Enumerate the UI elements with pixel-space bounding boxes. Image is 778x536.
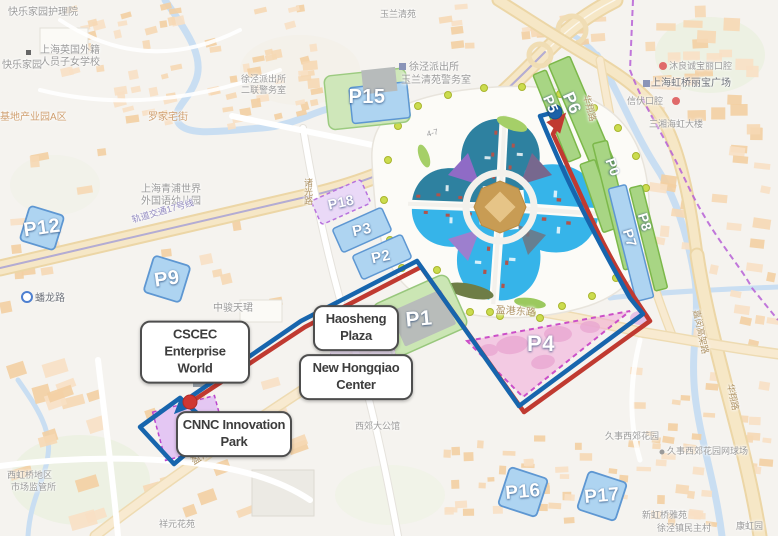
- route-end-marker: [183, 395, 197, 409]
- map-building: [668, 423, 678, 431]
- map-building: [652, 443, 661, 449]
- map-building: [695, 6, 706, 18]
- map-building: [575, 443, 582, 450]
- map-building: [307, 78, 320, 89]
- map-building: [750, 238, 765, 249]
- map-building: [645, 42, 655, 52]
- map-building: [755, 315, 765, 325]
- map-building: [711, 107, 725, 119]
- parking-area-p15: [323, 66, 410, 130]
- map-building: [580, 453, 592, 461]
- map-building: [633, 402, 646, 409]
- map-building: [726, 222, 741, 231]
- dental-clinic-icon: [672, 97, 680, 105]
- map-building: [451, 480, 459, 489]
- map-building: [161, 248, 172, 257]
- map-building: [560, 474, 569, 479]
- mall-icon: [643, 80, 650, 87]
- map-building: [657, 495, 665, 504]
- map-building: [707, 53, 722, 62]
- map-building: [735, 59, 753, 71]
- map-building: [608, 468, 617, 474]
- map-building: [766, 272, 776, 282]
- gate-dot: [633, 153, 640, 160]
- map-graphics: [0, 0, 778, 536]
- map-building: [692, 433, 702, 440]
- map-building: [96, 65, 105, 73]
- map-building: [142, 40, 150, 50]
- map-building: [477, 440, 484, 448]
- gate-dot: [445, 92, 452, 99]
- map-building: [443, 450, 451, 458]
- map-building: [163, 115, 173, 125]
- gate-dot: [589, 293, 596, 300]
- map-building: [463, 452, 473, 461]
- map-building: [650, 81, 670, 90]
- map-building: [564, 517, 575, 524]
- metro-station-icon: [22, 292, 32, 302]
- map-building: [534, 435, 545, 441]
- map-building: [703, 413, 715, 418]
- map-building: [230, 75, 238, 83]
- map-building: [747, 124, 761, 134]
- gate-dot: [481, 85, 488, 92]
- map-building: [455, 501, 467, 509]
- gate-dot: [537, 315, 544, 322]
- map-building: [759, 458, 773, 466]
- route-start-marker: [548, 105, 562, 119]
- map-building: [747, 432, 761, 441]
- map-building: [668, 518, 676, 526]
- map-building: [730, 104, 747, 116]
- map-building: [298, 70, 308, 76]
- map-building: [465, 43, 475, 49]
- tennis-court-icon: [660, 450, 665, 455]
- map-building: [159, 20, 167, 28]
- map-building: [251, 85, 260, 94]
- map-building: [445, 507, 457, 512]
- map-building: [701, 490, 712, 497]
- map-building: [11, 244, 22, 254]
- gate-dot: [434, 267, 441, 274]
- map-building: [749, 417, 761, 426]
- map-building: [564, 494, 575, 501]
- map-building: [548, 503, 561, 510]
- map-building: [591, 33, 606, 42]
- map-building: [251, 98, 262, 108]
- map-building: [487, 477, 494, 482]
- map-canvas[interactable]: 快乐家园护理院快乐家园上海英国外籍人员子女学校玉兰清苑徐泾派出所玉兰清苑警务室徐…: [0, 0, 778, 536]
- gate-dot: [381, 197, 388, 204]
- map-building: [149, 87, 159, 97]
- map-building: [451, 447, 460, 456]
- map-building: [692, 467, 704, 476]
- gate-dot: [497, 313, 504, 320]
- map-building: [451, 26, 464, 35]
- map-building: [683, 20, 702, 28]
- map-building: [451, 40, 465, 49]
- map-building: [697, 30, 716, 43]
- map-building: [723, 18, 740, 32]
- map-building: [687, 110, 706, 121]
- gate-dot: [487, 309, 494, 316]
- map-building: [727, 95, 742, 105]
- map-building: [705, 383, 718, 391]
- map-building: [683, 51, 700, 60]
- map-building: [499, 466, 506, 475]
- map-building: [652, 436, 661, 443]
- map-building: [503, 451, 516, 456]
- gate-dot: [615, 125, 622, 132]
- dental-clinic-icon: [659, 62, 667, 70]
- map-building: [656, 459, 667, 466]
- police-station-icon: [399, 63, 406, 70]
- map-building: [0, 301, 12, 314]
- map-building: [675, 484, 689, 494]
- gate-dot: [385, 157, 392, 164]
- map-building: [463, 509, 474, 516]
- map-building: [97, 148, 106, 156]
- map-building: [733, 155, 749, 163]
- map-building: [668, 77, 682, 90]
- map-building: [656, 23, 676, 31]
- map-building: [667, 513, 675, 519]
- map-building: [555, 466, 568, 473]
- map-building: [682, 443, 696, 454]
- map-building: [668, 52, 681, 63]
- map-building: [758, 381, 770, 391]
- gate-dot: [519, 84, 526, 91]
- gate-dot: [529, 310, 536, 317]
- gate-dot: [467, 309, 474, 316]
- map-building: [651, 511, 662, 519]
- map-building: [30, 155, 40, 167]
- map-building: [684, 74, 698, 86]
- map-building: [309, 43, 317, 52]
- gate-dot: [415, 103, 422, 110]
- map-building: [128, 70, 139, 81]
- map-building: [524, 458, 534, 466]
- map-building: [636, 467, 651, 472]
- map-building: [712, 194, 728, 204]
- map-building: [681, 395, 691, 401]
- map-building: [479, 483, 486, 489]
- gate-dot: [559, 303, 566, 310]
- map-building: [660, 225, 670, 237]
- map-building: [117, 91, 126, 98]
- map-building: [302, 60, 318, 70]
